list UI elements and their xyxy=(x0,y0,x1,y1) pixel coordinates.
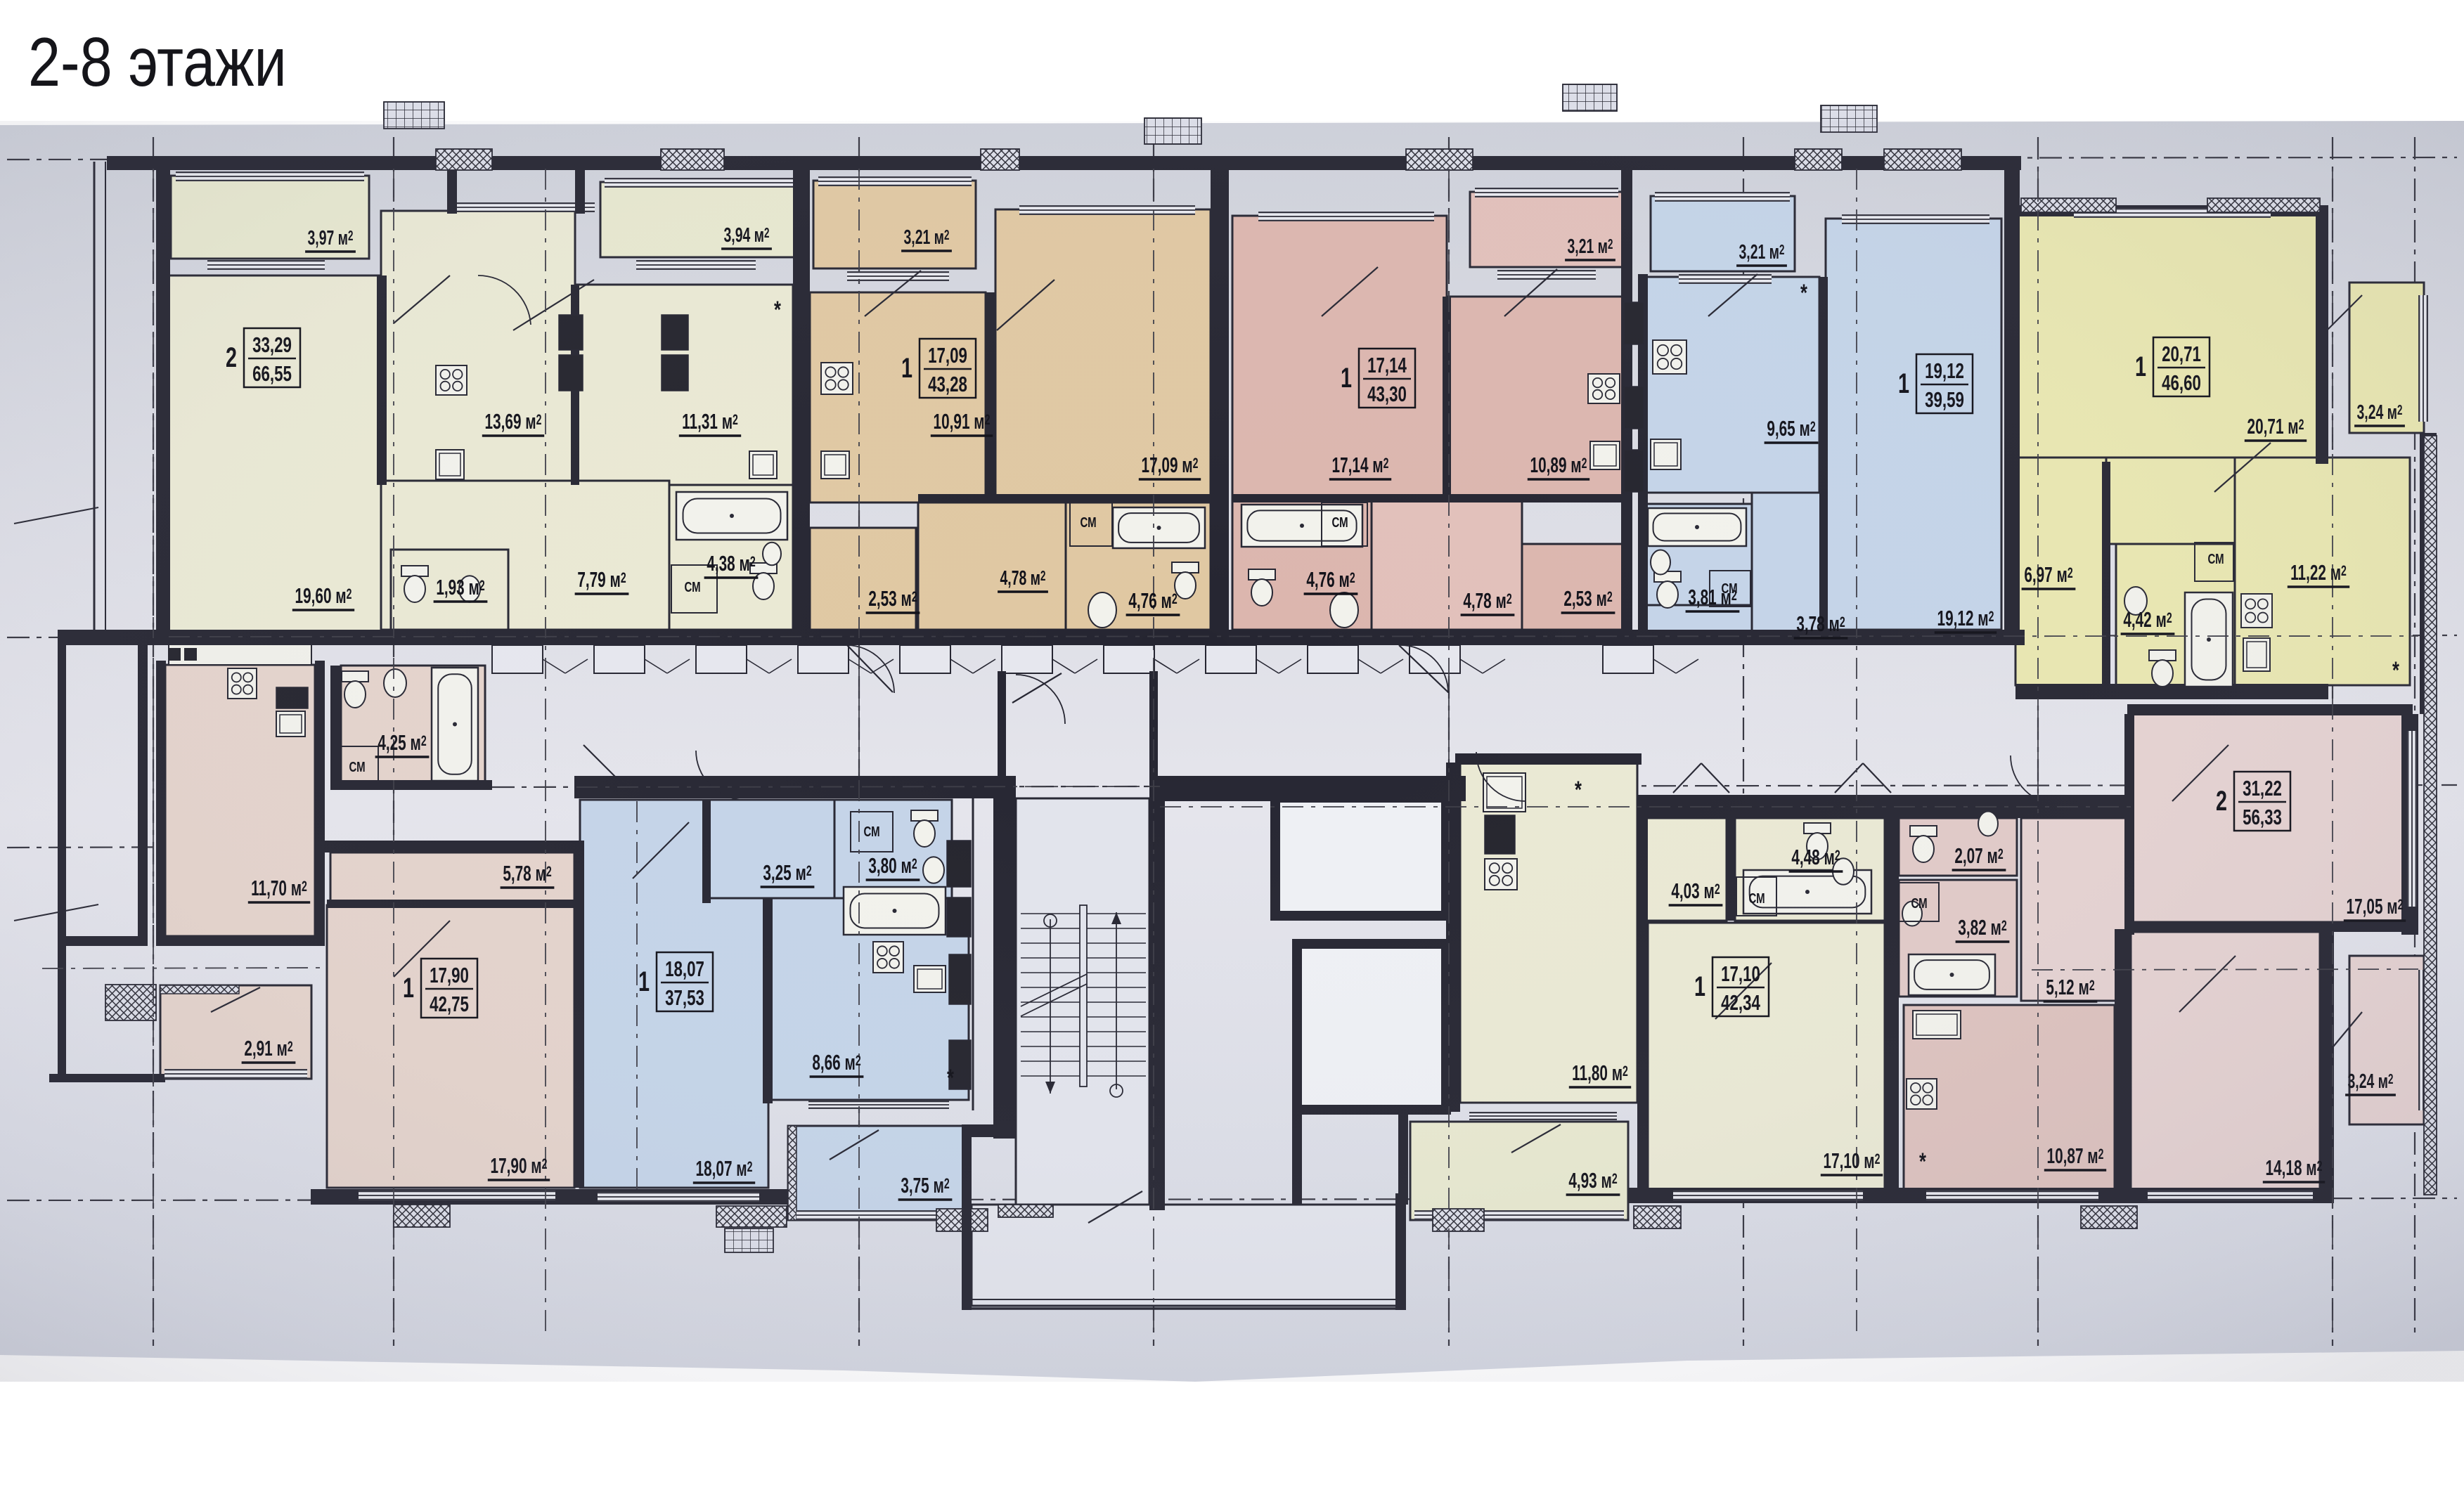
svg-text:2-8 этажи: 2-8 этажи xyxy=(28,25,287,101)
